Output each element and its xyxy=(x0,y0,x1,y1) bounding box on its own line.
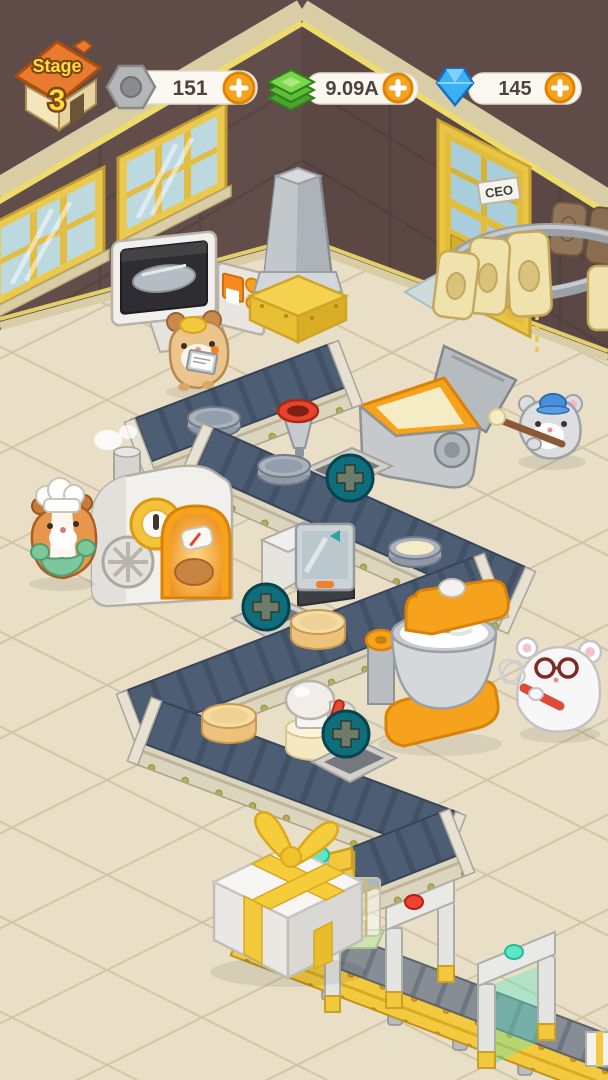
cash-value: 9.09A xyxy=(325,78,378,100)
frosting-dome xyxy=(286,681,334,719)
baked-cake-2 xyxy=(202,704,256,743)
pan-with-batter xyxy=(389,537,441,567)
red-dome-light xyxy=(405,895,423,909)
mint-dome-light-2 xyxy=(505,945,523,959)
upgrade-plus-button-3[interactable] xyxy=(323,711,369,757)
game-screen: CEO xyxy=(0,0,608,1080)
outgoing-package xyxy=(586,1032,608,1066)
pen xyxy=(211,346,219,354)
stage-label: Stage xyxy=(32,56,81,76)
upgrade-plus-button-2[interactable] xyxy=(243,584,289,630)
baking-bread xyxy=(175,559,213,585)
clipboard xyxy=(186,350,217,375)
currency-bolts[interactable]: 151 xyxy=(107,66,257,108)
add-gems-button[interactable] xyxy=(546,74,574,102)
bolts-value: 151 xyxy=(172,77,207,100)
baking-pan-2 xyxy=(258,455,310,485)
hamster-cap xyxy=(180,317,206,333)
add-cash-button[interactable] xyxy=(384,74,412,102)
ribbon xyxy=(244,896,262,964)
gems-value: 145 xyxy=(498,78,531,100)
stage-number: 3 xyxy=(49,84,66,117)
upgrade-plus-button-1[interactable] xyxy=(327,455,373,501)
ceo-door-sign: CEO xyxy=(478,177,521,204)
add-bolts-button[interactable] xyxy=(224,73,254,103)
currency-cash[interactable]: 9.09A xyxy=(268,70,418,110)
steam-puff xyxy=(94,430,122,450)
baked-cake xyxy=(291,610,345,649)
currency-gems[interactable]: 145 xyxy=(437,69,581,105)
